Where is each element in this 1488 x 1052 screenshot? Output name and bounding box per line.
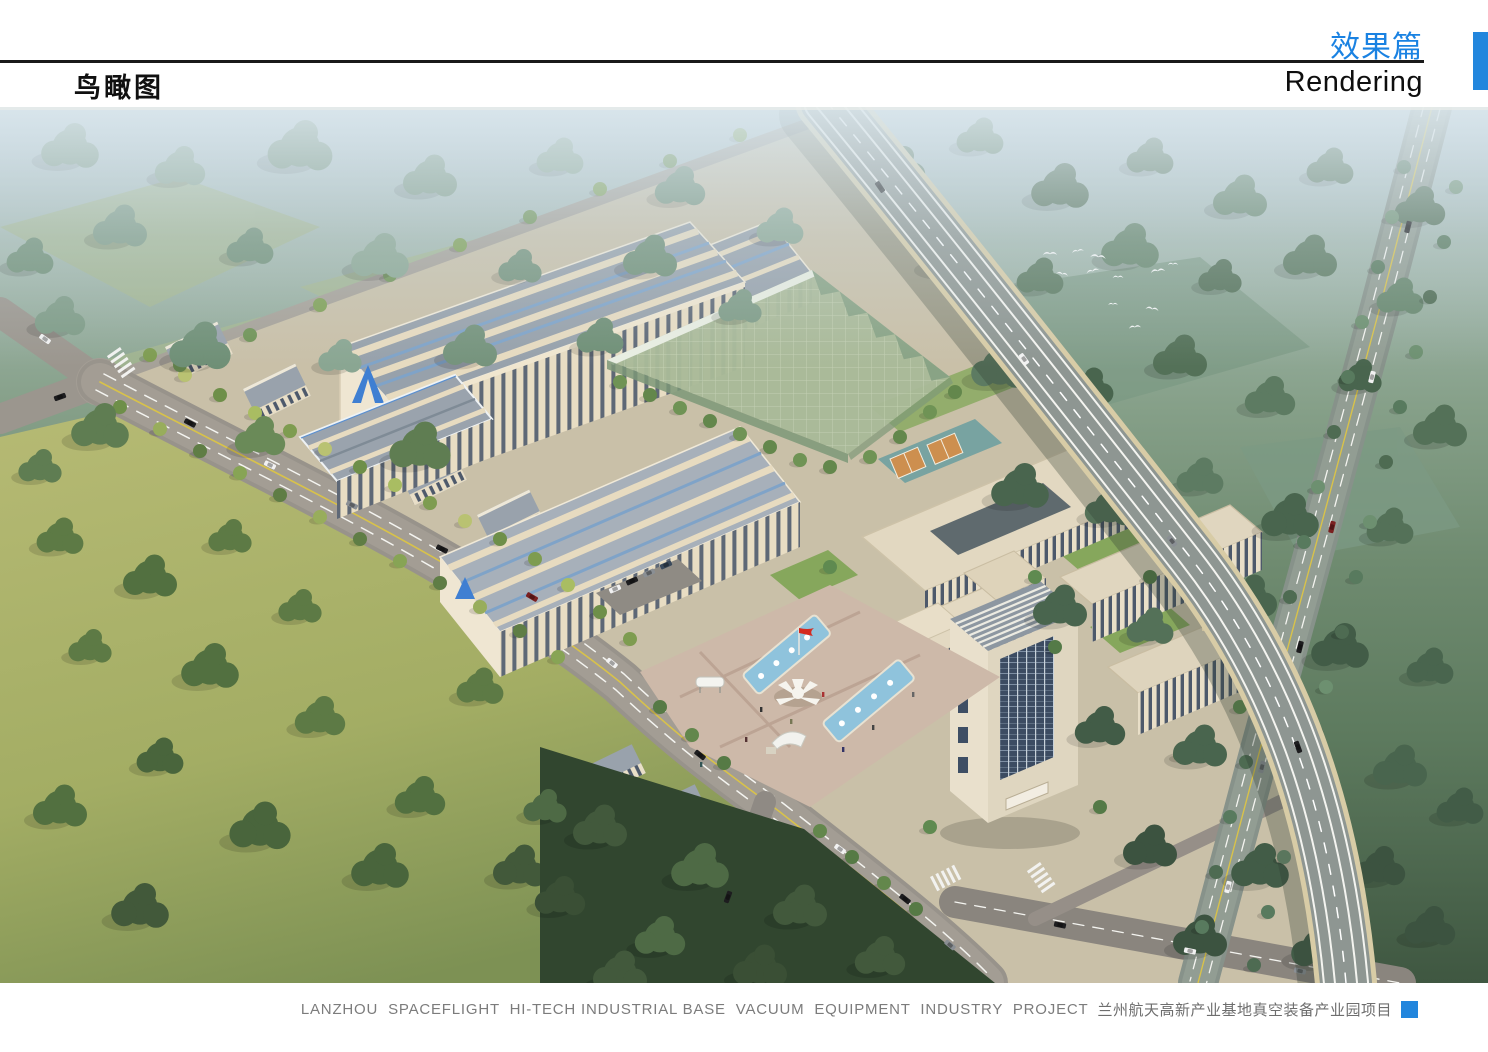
blue-tab-marker [1473, 32, 1488, 90]
section-title-en: Rendering [1285, 66, 1423, 99]
footer-caption-zh: 兰州航天高新产业基地真空装备产业园项目 [1097, 999, 1392, 1020]
page-title: 鸟瞰图 [74, 66, 164, 105]
aerial-rendering [0, 107, 1488, 983]
atmosphere-haze [0, 107, 1488, 367]
header-rule [0, 60, 1424, 63]
footer-blue-square [1401, 1001, 1418, 1018]
section-title-zh: 效果篇 [1330, 22, 1423, 66]
footer-caption: LANZHOU SPACEFLIGHT HI-TECH INDUSTRIAL B… [301, 999, 1418, 1020]
footer-caption-en: LANZHOU SPACEFLIGHT HI-TECH INDUSTRIAL B… [301, 1001, 1089, 1018]
